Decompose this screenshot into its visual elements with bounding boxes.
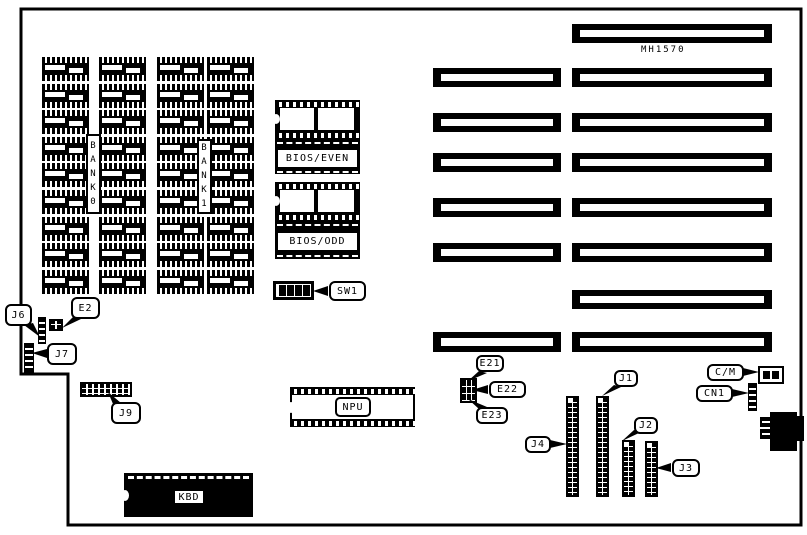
isa-slot: [572, 24, 772, 43]
bank0-label: BANK0: [86, 134, 101, 214]
pin-header-j2: [622, 440, 635, 497]
slot-groove: [580, 249, 764, 256]
isa-slot: [572, 198, 772, 217]
bios-odd-chip: BIOS/ODD: [275, 182, 360, 259]
slot-groove: [580, 119, 764, 126]
isa-slot: [572, 153, 772, 172]
callout-j9: J9: [111, 402, 141, 424]
memory-chip: [99, 163, 146, 187]
callout-tail: [313, 286, 328, 296]
callout-tail: [656, 463, 671, 472]
memory-chip: [157, 217, 204, 241]
memory-chip: [207, 137, 254, 161]
sw1-switch-cell: [279, 285, 286, 296]
cm-jumper-cell: [763, 371, 770, 379]
slot-groove: [580, 338, 764, 346]
sw1-switch-cell: [287, 285, 294, 296]
cm-jumper-cell: [772, 371, 779, 379]
slot-groove: [441, 159, 553, 166]
isa-slot: [572, 243, 772, 262]
callout-j6: J6: [5, 304, 32, 326]
callout-tail: [743, 368, 759, 376]
callout-tail: [732, 389, 749, 397]
isa-slot: [572, 332, 772, 352]
memory-chip: [42, 270, 89, 294]
npu-label: NPU: [335, 397, 371, 417]
memory-chip: [42, 163, 89, 187]
cm-jumper-block: [758, 366, 784, 384]
memory-chip: [42, 217, 89, 241]
isa-slot: [572, 113, 772, 132]
callout-e21: E21: [476, 355, 504, 372]
socket-divider: [277, 224, 358, 226]
memory-chip: [207, 270, 254, 294]
memory-chip: [99, 84, 146, 108]
memory-chip: [99, 137, 146, 161]
socket-divider: [277, 142, 358, 144]
kbd-chip: KBD: [124, 473, 253, 517]
cn1-pin-strip: [748, 383, 757, 411]
j9-connector: [80, 382, 132, 397]
isa-slot: [433, 113, 561, 132]
memory-chip: [99, 190, 146, 214]
callout-e2: E2: [71, 297, 100, 319]
chip-stripe: [128, 476, 249, 479]
sw1-switch-cell: [303, 285, 310, 296]
connector-tab-icon: [760, 417, 772, 427]
memory-chip: [99, 57, 146, 81]
callout-j7: J7: [47, 343, 77, 365]
memory-chip: [207, 110, 254, 134]
eprom-window: [280, 108, 314, 130]
pin-header-j3: [645, 441, 658, 497]
memory-chip: [42, 84, 89, 108]
chip-notch-icon: [121, 490, 129, 501]
slot-groove: [580, 74, 764, 81]
callout-e22: E22: [489, 381, 526, 398]
callout-j1: J1: [614, 370, 638, 387]
chip-notch-icon: [287, 402, 295, 413]
chip-notch-icon: [272, 114, 280, 124]
memory-chip: [42, 190, 89, 214]
pin-row-icon: [275, 100, 360, 108]
pin-row-icon: [290, 419, 415, 427]
slot-groove: [580, 159, 764, 166]
slot-groove: [441, 249, 553, 256]
j6-pin-strip: [38, 317, 46, 344]
slot-groove: [441, 119, 553, 126]
sw1-dip-switch: [273, 281, 314, 300]
slot-groove: [580, 296, 764, 303]
callout-cm: C/M: [707, 364, 744, 381]
kbd-label: KBD: [175, 491, 203, 503]
connector-tab-icon: [760, 429, 772, 439]
memory-chip: [157, 270, 204, 294]
bios-even-chip: BIOS/EVEN: [275, 100, 360, 174]
e2-jumper-block: [49, 319, 63, 331]
memory-chip: [207, 57, 254, 81]
chip-notch-icon: [272, 196, 280, 206]
memory-chip: [42, 137, 89, 161]
isa-slot: [433, 198, 561, 217]
callout-j2: J2: [634, 417, 658, 434]
callout-tail: [32, 349, 47, 358]
memory-chip: [42, 243, 89, 267]
socket-divider: [277, 255, 358, 257]
slot-groove: [580, 30, 764, 37]
pin1-marker: [568, 398, 572, 402]
memory-chip: [42, 57, 89, 81]
bios-even-label: BIOS/EVEN: [278, 150, 357, 167]
slot-groove: [441, 74, 553, 81]
callout-sw1: SW1: [329, 281, 366, 301]
pin-row-icon: [275, 131, 360, 139]
bios-odd-label: BIOS/ODD: [278, 233, 357, 250]
slot-groove: [580, 204, 764, 211]
callout-e23: E23: [476, 407, 508, 424]
pin1-marker: [624, 442, 628, 446]
pin-header-j1: [596, 396, 609, 497]
eprom-window: [318, 190, 354, 212]
memory-chip: [99, 243, 146, 267]
slot-groove: [441, 338, 553, 346]
callout-tail: [550, 440, 567, 448]
motherboard-diagram: J6E2J7J9SW1E21E22E23J1J4J2J3C/MCN1 MH157…: [0, 0, 807, 535]
j7-pin-strip: [24, 343, 34, 373]
socket-divider: [277, 171, 358, 173]
isa-slot: [433, 68, 561, 87]
eprom-window: [318, 108, 354, 130]
pin-row-icon: [275, 213, 360, 221]
isa-slot: [433, 243, 561, 262]
memory-chip: [207, 163, 254, 187]
memory-chip: [157, 243, 204, 267]
memory-chip: [207, 243, 254, 267]
keyboard-din-connector: [770, 412, 804, 451]
memory-chip: [157, 57, 204, 81]
isa-slot: [433, 153, 561, 172]
pin-row-icon: [290, 387, 415, 395]
pin1-marker: [647, 443, 651, 447]
memory-chip: [99, 110, 146, 134]
pin-row-icon: [275, 182, 360, 190]
isa-slot: [572, 290, 772, 309]
memory-chip: [207, 217, 254, 241]
e21-e23-jumper-block: [460, 378, 477, 403]
isa-slot: [433, 332, 561, 352]
memory-chip: [207, 190, 254, 214]
eprom-window: [280, 190, 314, 212]
callout-j4: J4: [525, 436, 551, 453]
bank1-label: BANK1: [197, 139, 212, 214]
memory-chip: [99, 270, 146, 294]
memory-chip: [42, 110, 89, 134]
memory-chip: [207, 84, 254, 108]
memory-chip: [157, 84, 204, 108]
callout-j3: J3: [672, 459, 700, 477]
model-label: MH1570: [641, 45, 686, 55]
memory-chip: [157, 110, 204, 134]
pin-header-j4: [566, 396, 579, 497]
npu-socket: NPU: [290, 387, 415, 427]
callout-cn1: CN1: [696, 385, 733, 402]
memory-chip: [99, 217, 146, 241]
isa-slot: [572, 68, 772, 87]
pin1-marker: [598, 398, 602, 402]
sw1-switch-cell: [295, 285, 302, 296]
slot-groove: [441, 204, 553, 211]
